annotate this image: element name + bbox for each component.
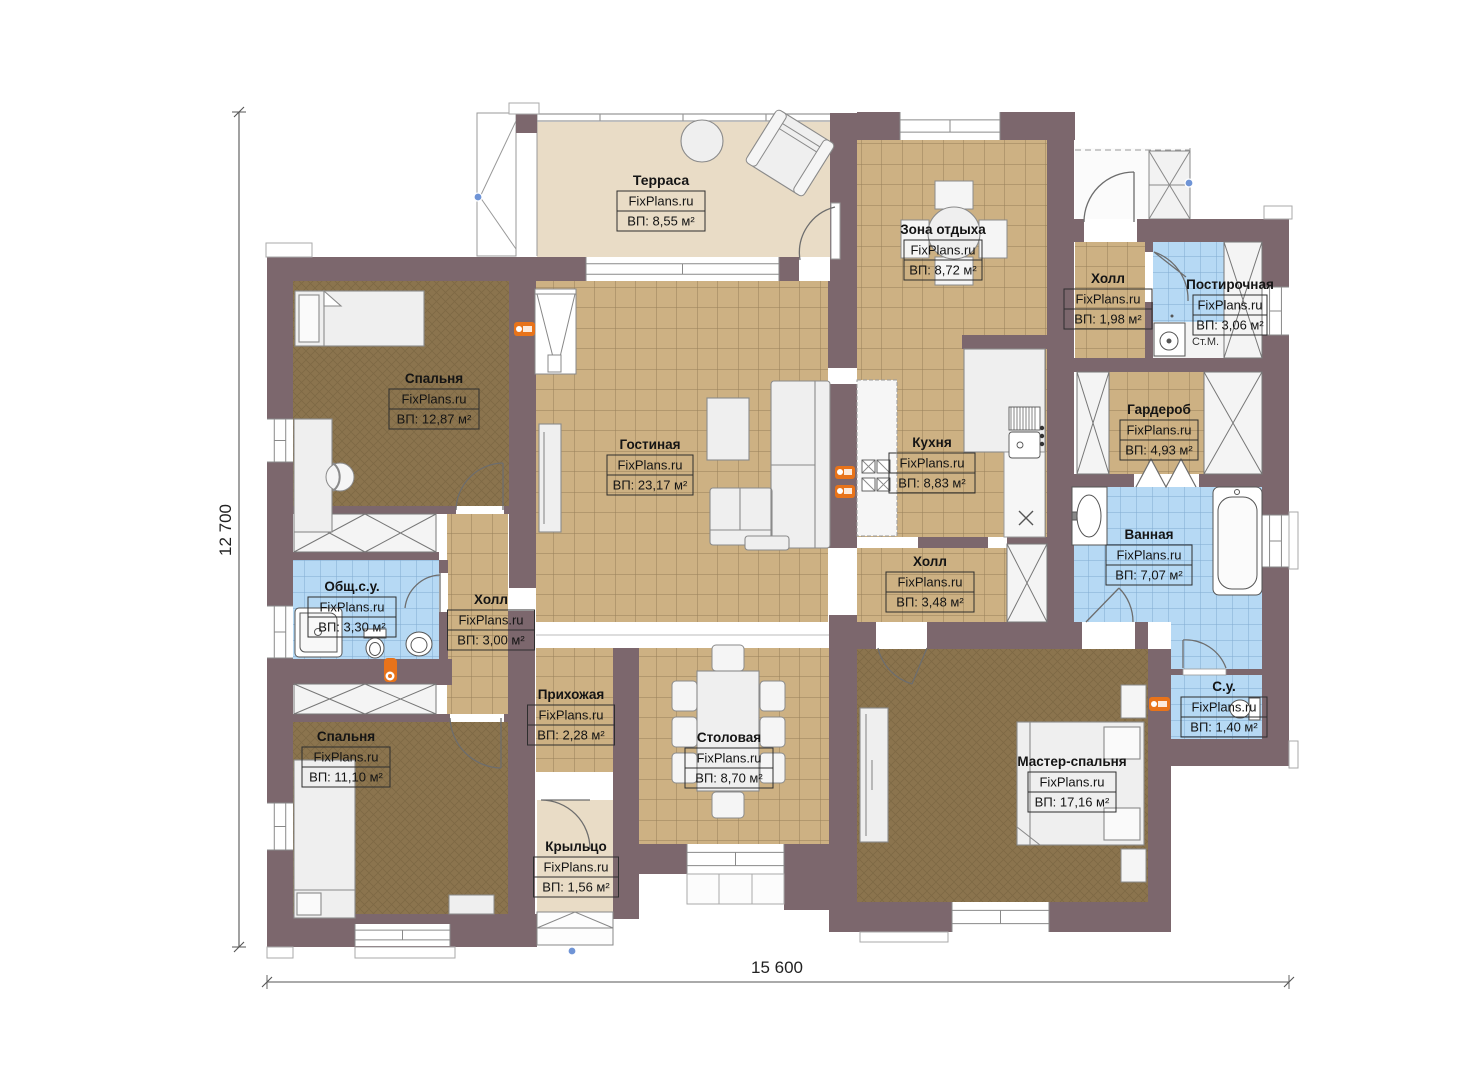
svg-text:FixPlans.ru: FixPlans.ru — [458, 613, 523, 628]
svg-text:FixPlans.ru: FixPlans.ru — [543, 860, 608, 875]
svg-text:ВП: 1,98 м²: ВП: 1,98 м² — [1074, 312, 1142, 327]
svg-text:С.у.: С.у. — [1212, 679, 1236, 694]
svg-text:FixPlans.ru: FixPlans.ru — [1075, 292, 1140, 307]
svg-text:FixPlans.ru: FixPlans.ru — [313, 750, 378, 765]
svg-text:ВП: 8,72 м²: ВП: 8,72 м² — [909, 263, 977, 278]
svg-text:ВП: 2,28 м²: ВП: 2,28 м² — [537, 728, 605, 743]
svg-text:Гостиная: Гостиная — [619, 437, 680, 452]
svg-text:ВП: 3,30 м²: ВП: 3,30 м² — [318, 620, 386, 635]
svg-text:Зона отдыха: Зона отдыха — [900, 222, 986, 237]
svg-text:FixPlans.ru: FixPlans.ru — [1039, 775, 1104, 790]
svg-text:Спальня: Спальня — [405, 371, 463, 386]
svg-text:FixPlans.ru: FixPlans.ru — [401, 392, 466, 407]
svg-text:FixPlans.ru: FixPlans.ru — [910, 243, 975, 258]
svg-text:ВП: 1,56 м²: ВП: 1,56 м² — [542, 880, 610, 895]
svg-text:12 700: 12 700 — [216, 504, 235, 556]
svg-text:FixPlans.ru: FixPlans.ru — [319, 600, 384, 615]
svg-text:ВП: 8,83 м²: ВП: 8,83 м² — [898, 476, 966, 491]
svg-text:Холл: Холл — [474, 592, 508, 607]
svg-text:ВП: 1,40 м²: ВП: 1,40 м² — [1190, 720, 1258, 735]
svg-text:ВП: 7,07 м²: ВП: 7,07 м² — [1115, 568, 1183, 583]
svg-text:ВП: 12,87 м²: ВП: 12,87 м² — [397, 412, 472, 427]
svg-text:ВП: 11,10 м²: ВП: 11,10 м² — [309, 770, 383, 785]
svg-text:Прихожая: Прихожая — [538, 687, 605, 702]
svg-text:FixPlans.ru: FixPlans.ru — [899, 456, 964, 471]
svg-text:Кухня: Кухня — [912, 435, 951, 450]
svg-text:FixPlans.ru: FixPlans.ru — [628, 194, 693, 209]
svg-text:ВП: 4,93 м²: ВП: 4,93 м² — [1125, 443, 1193, 458]
svg-text:ВП: 8,55 м²: ВП: 8,55 м² — [627, 214, 695, 229]
svg-text:ВП: 23,17 м²: ВП: 23,17 м² — [613, 478, 688, 493]
svg-text:ВП: 3,00 м²: ВП: 3,00 м² — [457, 633, 525, 648]
svg-text:FixPlans.ru: FixPlans.ru — [696, 751, 761, 766]
svg-text:Ванная: Ванная — [1125, 527, 1174, 542]
svg-text:ВП: 3,48 м²: ВП: 3,48 м² — [896, 595, 964, 610]
svg-text:Столовая: Столовая — [697, 730, 761, 745]
svg-text:Постирочная: Постирочная — [1186, 277, 1274, 292]
svg-text:Гардероб: Гардероб — [1127, 402, 1191, 417]
svg-text:FixPlans.ru: FixPlans.ru — [1197, 298, 1262, 313]
svg-text:FixPlans.ru: FixPlans.ru — [1191, 700, 1256, 715]
svg-text:Терраса: Терраса — [633, 172, 689, 188]
svg-text:Холл: Холл — [913, 554, 947, 569]
svg-text:ВП: 3,06 м²: ВП: 3,06 м² — [1196, 318, 1264, 333]
svg-text:Крыльцо: Крыльцо — [545, 839, 606, 854]
svg-text:FixPlans.ru: FixPlans.ru — [538, 708, 603, 723]
svg-text:FixPlans.ru: FixPlans.ru — [617, 458, 682, 473]
svg-text:FixPlans.ru: FixPlans.ru — [897, 575, 962, 590]
svg-text:ВП: 8,70 м²: ВП: 8,70 м² — [695, 771, 763, 786]
svg-text:15 600: 15 600 — [751, 958, 803, 977]
svg-text:FixPlans.ru: FixPlans.ru — [1116, 548, 1181, 563]
svg-text:Холл: Холл — [1091, 271, 1125, 286]
svg-text:FixPlans.ru: FixPlans.ru — [1126, 423, 1191, 438]
svg-text:Общ.с.у.: Общ.с.у. — [324, 579, 379, 594]
svg-text:Мастер-спальня: Мастер-спальня — [1017, 754, 1126, 769]
svg-text:Ст.М.: Ст.М. — [1192, 336, 1219, 348]
svg-text:Спальня: Спальня — [317, 729, 375, 744]
svg-text:ВП: 17,16 м²: ВП: 17,16 м² — [1035, 795, 1110, 810]
